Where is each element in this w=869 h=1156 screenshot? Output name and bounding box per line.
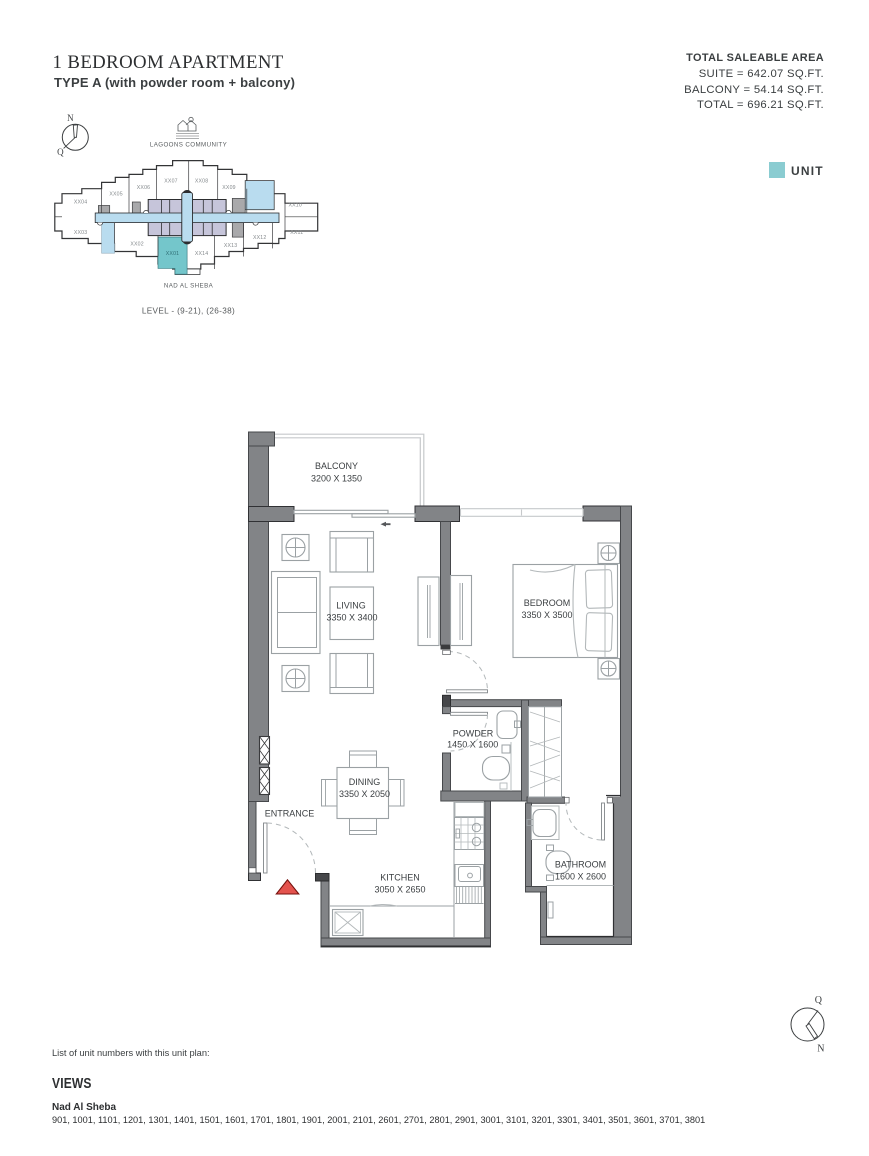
svg-text:XX10: XX10 [288,203,302,209]
svg-text:LAGOONS COMMUNITY: LAGOONS COMMUNITY [150,142,227,149]
svg-text:NAD AL SHEBA: NAD AL SHEBA [164,283,214,290]
svg-text:XX04: XX04 [74,199,88,205]
svg-text:DINING: DINING [349,777,381,787]
svg-text:XX02: XX02 [130,241,144,247]
svg-text:3200 X 1350: 3200 X 1350 [311,474,362,484]
svg-text:XX08: XX08 [195,178,209,184]
svg-text:Q: Q [57,147,64,157]
svg-text:3350 X 2050: 3350 X 2050 [339,789,390,799]
svg-text:XX11: XX11 [290,230,303,236]
svg-text:Q: Q [815,995,823,1006]
svg-text:XX01: XX01 [166,251,180,257]
svg-text:XX06: XX06 [137,185,151,191]
svg-text:XX09: XX09 [222,185,236,191]
svg-text:XX14: XX14 [195,251,209,257]
svg-text:XX03: XX03 [74,230,88,236]
svg-text:1600 X 2600: 1600 X 2600 [555,872,606,882]
svg-text:3350 X 3400: 3350 X 3400 [326,613,377,623]
svg-text:ENTRANCE: ENTRANCE [265,809,315,819]
svg-text:XX05: XX05 [109,191,123,197]
svg-text:BATHROOM: BATHROOM [555,860,606,870]
svg-text:XX13: XX13 [224,243,238,249]
svg-text:3350 X 3500: 3350 X 3500 [521,610,572,620]
svg-text:BALCONY: BALCONY [315,461,358,471]
svg-text:POWDER: POWDER [453,729,494,739]
svg-text:XX12: XX12 [253,235,267,241]
svg-text:N: N [67,113,74,123]
svg-text:KITCHEN: KITCHEN [380,873,420,883]
svg-text:BEDROOM: BEDROOM [524,598,571,608]
svg-text:LEVEL - (9-21), (26-38): LEVEL - (9-21), (26-38) [142,307,235,316]
svg-text:1450 X 1600: 1450 X 1600 [447,740,498,750]
svg-text:N: N [817,1044,824,1055]
svg-text:LIVING: LIVING [336,601,366,611]
svg-text:XX07: XX07 [164,178,178,184]
svg-text:3050 X 2650: 3050 X 2650 [374,885,425,895]
